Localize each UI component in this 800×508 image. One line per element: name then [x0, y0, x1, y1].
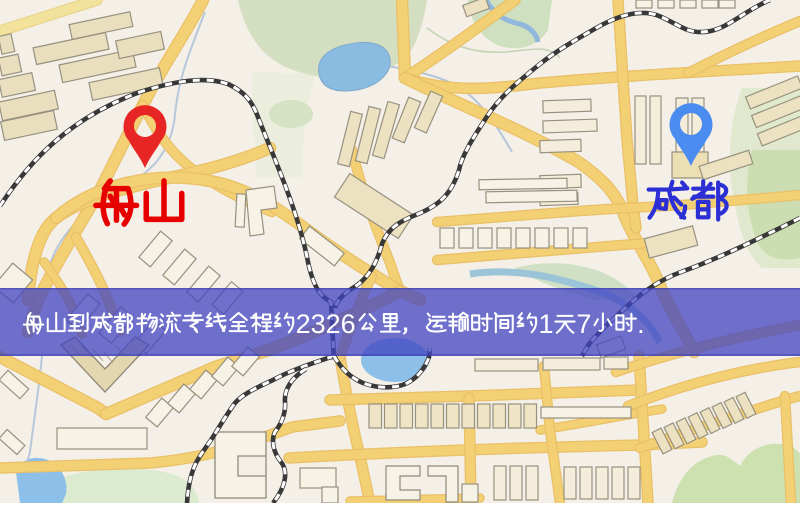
svg-text:.: .	[637, 309, 645, 339]
svg-text:7: 7	[576, 309, 591, 339]
svg-text:2326: 2326	[296, 309, 356, 339]
svg-text:1: 1	[539, 309, 554, 339]
